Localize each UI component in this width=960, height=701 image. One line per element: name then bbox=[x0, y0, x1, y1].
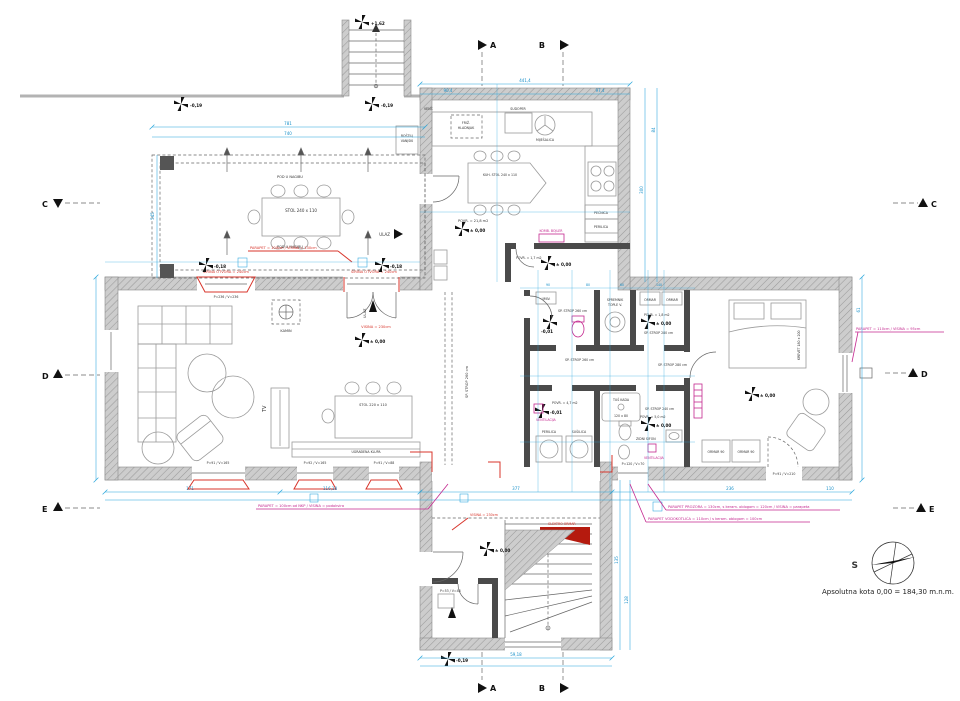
small-window-label: P=53 / V=48 bbox=[440, 589, 461, 593]
dim-label: 90,4 bbox=[444, 88, 453, 93]
vent-box bbox=[648, 444, 656, 452]
armchair bbox=[785, 411, 827, 452]
dim-label: 128 bbox=[624, 596, 629, 604]
section-arrow-icon bbox=[478, 40, 487, 50]
tank-label: SPREMNIK bbox=[607, 298, 624, 302]
exterior-stair-wall bbox=[342, 20, 349, 96]
dim-label: 135 bbox=[614, 556, 619, 564]
dishwasher-label: PERILICA bbox=[594, 225, 609, 229]
section-label-d-right: D bbox=[921, 370, 928, 379]
kitchen-door bbox=[433, 176, 459, 202]
level-label: ± 0,00 bbox=[370, 339, 385, 344]
opening-width-label: ŠIRINA OTVORA = 240cm bbox=[351, 269, 397, 274]
corridor-ceiling-label: SP. STROP 280 cm bbox=[658, 363, 687, 367]
tv-label: TV bbox=[262, 405, 268, 413]
level-label: -0,01 bbox=[550, 410, 562, 415]
compass-label: S bbox=[852, 561, 858, 571]
dim-label: 97,4 bbox=[596, 88, 605, 93]
armchair bbox=[175, 413, 226, 463]
dim-label: 171 bbox=[186, 486, 194, 491]
cooktop bbox=[588, 162, 616, 196]
north-openings: ŠIRINA OTVORA = 240cm P=236 / V=236 -0,1… bbox=[197, 258, 402, 329]
dim-label: 90 bbox=[546, 283, 550, 287]
entry-height-note: VISINA = 230cm bbox=[470, 513, 499, 517]
section-label-e-left: E bbox=[42, 505, 47, 514]
bath-block: UMIV. SP. STROP 260 cm -0,01 SPREMNIK TO… bbox=[530, 292, 682, 473]
datum-note: Apsolutna kota 0,00 = 184,30 m.n.m. bbox=[822, 588, 954, 596]
section-arrow-icon bbox=[560, 40, 569, 50]
entrance-arrow-icon bbox=[394, 229, 403, 239]
shower-label: TUŠ KADA bbox=[612, 397, 630, 402]
dim-label: 59,18 bbox=[510, 652, 522, 657]
pouf bbox=[212, 376, 254, 418]
parapet-note-right-1: PARAPET PROZORA = 130cm, s keram. oblogo… bbox=[668, 505, 810, 509]
terrace-table-label: STOL 240 x 110 bbox=[285, 208, 317, 213]
compass: S bbox=[852, 542, 915, 584]
bed bbox=[729, 300, 806, 368]
dim-label: 60 bbox=[620, 283, 624, 287]
parapet-note-left: PARAPET = 100cm od NKP / VISINA = podokv… bbox=[258, 504, 344, 508]
grill-label: VANJSKI bbox=[401, 139, 414, 143]
vent-label: VENTILACIJA bbox=[536, 418, 556, 422]
corridor-door bbox=[690, 352, 716, 378]
level-marker-icon bbox=[455, 222, 469, 236]
parapet-notes: PARAPET = 100cm od NKP / VISINA = podokv… bbox=[256, 484, 840, 522]
section-arrow-icon bbox=[908, 368, 918, 377]
level-marker-icon bbox=[355, 333, 369, 347]
section-arrow-icon bbox=[560, 683, 569, 693]
water-tank bbox=[605, 312, 625, 332]
door-height-note: VISINA = 230cm bbox=[361, 325, 391, 329]
level-marker-icon bbox=[745, 387, 759, 401]
bath-ceiling-label: SP. STROP 240 cm bbox=[645, 407, 674, 411]
window-size-label: P=91 / V=88 bbox=[374, 461, 395, 465]
bidet bbox=[619, 445, 630, 459]
small-room-door bbox=[458, 584, 478, 604]
bedroom: KREVET 180 x 200 ± 0,00 ORMAR 90 ORMAR 9… bbox=[690, 300, 944, 476]
section-label-c-right: C bbox=[931, 200, 937, 209]
level-label: +1,62 bbox=[371, 21, 385, 26]
boiler bbox=[539, 234, 564, 242]
level-label: -0,19 bbox=[381, 103, 393, 108]
vent-label: VENT. bbox=[424, 107, 433, 111]
wardrobe-label: ORMAR bbox=[644, 298, 657, 302]
window-size-label: P=92 / V=165 bbox=[304, 461, 327, 465]
entrance-label: ULAZ bbox=[363, 308, 367, 318]
pergola-column bbox=[160, 156, 174, 170]
side-table bbox=[142, 432, 174, 464]
level-label: ± 0,00 bbox=[760, 393, 775, 398]
section-arrow-icon bbox=[916, 503, 926, 512]
washer-label: PERILICA bbox=[542, 430, 557, 434]
section-arrow-icon bbox=[478, 683, 487, 693]
level-marker-icon bbox=[441, 652, 455, 666]
wc-ceiling-label: SP. STROP 260 cm bbox=[558, 309, 587, 313]
dim-label: 116,18 bbox=[323, 486, 337, 491]
window-size-label: P=91 / V=165 bbox=[207, 461, 230, 465]
under-stair bbox=[505, 530, 575, 590]
section-arrow-icon bbox=[53, 369, 63, 378]
opening-width-label: ŠIRINA OTVORA = 240cm bbox=[203, 269, 249, 274]
level-marker-icon bbox=[541, 256, 555, 270]
round-table bbox=[803, 389, 829, 415]
dim-label: 80 bbox=[586, 283, 590, 287]
terrace: ROŠTILJ VANJSKI STOL 240 x 110 POD U NAG… bbox=[152, 126, 425, 278]
kitchen: FRIŽ. HLADNJAK SUDOPER MIJEŠALICA PEĆNIC… bbox=[424, 107, 618, 280]
bench-label: UGRAĐENA KLUPA bbox=[351, 450, 381, 454]
bedroom-parapet-note: PARAPET = 110cm / VISINA = 95cm bbox=[856, 327, 921, 331]
dim-label: 236 bbox=[726, 486, 734, 491]
section-arrow-icon bbox=[53, 199, 63, 208]
hall-ceiling-label: SP. STROP 260 cm bbox=[465, 366, 469, 398]
washbasin bbox=[666, 430, 682, 442]
sofa bbox=[138, 306, 232, 442]
entrance-arrow-icon bbox=[369, 300, 377, 312]
window-size-label: P=236 / V=236 bbox=[214, 295, 239, 299]
section-label-e-right: E bbox=[929, 505, 934, 514]
dim-label: 84 bbox=[651, 127, 656, 133]
level-label: ± 0,00 bbox=[470, 228, 485, 233]
electro-label: ELEKTRO ORMAR bbox=[548, 522, 576, 526]
pergola-column bbox=[160, 264, 174, 278]
tank-label: TOPLE V. bbox=[607, 303, 622, 307]
section-label-a-top: A bbox=[490, 41, 497, 50]
dim-label: 140 bbox=[656, 283, 662, 287]
vent-label: VENTILACIJA bbox=[644, 456, 664, 460]
kitchen-table bbox=[468, 163, 546, 203]
section-label-b-bottom: B bbox=[539, 684, 545, 693]
pouf bbox=[188, 354, 226, 392]
level-label: ± 0,00 bbox=[656, 423, 671, 428]
fridge-label: FRIŽ. bbox=[462, 120, 470, 125]
section-label-d-left: D bbox=[42, 372, 49, 381]
laundry-area-label: POVR. = 4,7 m2 bbox=[552, 401, 578, 405]
level-marker-icon bbox=[365, 97, 379, 111]
level-label: -0,19 bbox=[190, 103, 202, 108]
level-label: -0,01 bbox=[541, 329, 553, 334]
section-label-a-bottom: A bbox=[490, 684, 497, 693]
bath-area-label: POVR. = 5,0 m2 bbox=[640, 415, 666, 419]
section-label-b-top: B bbox=[539, 41, 545, 50]
level-label: -0,18 bbox=[390, 264, 402, 269]
fridge-label: HLADNJAK bbox=[458, 126, 475, 130]
fireplace-label: KAMIN bbox=[280, 329, 292, 333]
level-marker-icon bbox=[480, 542, 494, 556]
toilet bbox=[572, 321, 584, 337]
wardrobe-label: ORMAR 90 bbox=[708, 450, 725, 454]
kitchen-table-label: KUH. STOL 240 x 110 bbox=[483, 173, 517, 177]
window-reveal bbox=[366, 480, 402, 489]
terrace-parapet-note: PARAPET = 100cm / VISINA = 130cm bbox=[250, 246, 317, 250]
bedroom-door bbox=[768, 437, 798, 467]
dim-label: 61 bbox=[856, 307, 861, 313]
level-marker-icon bbox=[355, 15, 369, 29]
level-marker-icon bbox=[535, 404, 549, 418]
radiator bbox=[694, 384, 702, 418]
dining-table-label: STOL 220 x 110 bbox=[359, 403, 387, 407]
entry-wing: ELEKTRO ORMAR ± 0,00 VISINA = 230cm P=53… bbox=[410, 452, 612, 666]
level-label: ± 0,00 bbox=[556, 262, 571, 267]
floor-plan-page: +1,62 -0,19 -0,19 A B A B C C D D E E bbox=[0, 0, 960, 701]
level-label: -0,18 bbox=[214, 264, 226, 269]
dim-label: 781 bbox=[284, 121, 292, 126]
section-arrow-icon bbox=[918, 198, 928, 207]
level-label: -0,19 bbox=[456, 658, 468, 663]
gard-ceiling-label: SP. STROP 280 cm bbox=[644, 331, 673, 335]
dim-label: 441,4 bbox=[519, 78, 531, 83]
dim-label: 300 bbox=[639, 186, 644, 194]
entrance-label: ULAZ bbox=[379, 232, 390, 237]
boiler-label: KOMB. BOJLER bbox=[540, 229, 564, 233]
level-label: ± 0,00 bbox=[656, 321, 671, 326]
door-size-label: P=91 / V=210 bbox=[773, 472, 796, 476]
wardrobe-label: ORMAR bbox=[666, 298, 679, 302]
sink bbox=[505, 113, 532, 133]
siphon-label: ZIDNI SIFON bbox=[636, 437, 656, 441]
dim-label: 110 bbox=[826, 486, 834, 491]
dim-label: 545 bbox=[150, 212, 155, 220]
terrace-table bbox=[262, 198, 340, 236]
slope-label: POD U NAGIBU bbox=[277, 175, 303, 179]
exterior-stair-wall bbox=[404, 20, 411, 96]
site-ground: +1,62 -0,19 -0,19 bbox=[20, 15, 420, 111]
dim-label: 377 bbox=[512, 486, 520, 491]
parapet-note-right-2: PARAPET VODOKOTLIĆA = 110cm / s keram. o… bbox=[648, 516, 763, 521]
level-label: ± 0,00 bbox=[495, 548, 510, 553]
sink-label: SUDOPER bbox=[510, 107, 526, 111]
mixer-label: MIJEŠALICA bbox=[536, 137, 555, 142]
exterior-stairs bbox=[349, 24, 404, 88]
dim-label: 740 bbox=[284, 131, 292, 136]
oven-label: PEĆNICA bbox=[594, 210, 609, 215]
floor-plan-canvas: +1,62 -0,19 -0,19 A B A B C C D D E E bbox=[0, 0, 960, 701]
bed-label: KREVET 180 x 200 bbox=[797, 330, 801, 360]
corridor-ceiling-label: SP. STROP 260 cm bbox=[565, 358, 594, 362]
kitchen-wc-area: POVR. = 1,7 m2 bbox=[516, 256, 542, 260]
window-reveal bbox=[188, 480, 249, 489]
wardrobe-label: ORMAR 90 bbox=[738, 450, 755, 454]
shower-label: 120 x 80 bbox=[614, 414, 628, 418]
dryer-label: SUŠILICA bbox=[572, 429, 587, 434]
section-label-c-left: C bbox=[42, 200, 48, 209]
level-marker-icon bbox=[543, 315, 557, 329]
bath-window-label: P=120 / V=70 bbox=[622, 462, 645, 466]
section-arrow-icon bbox=[53, 502, 63, 511]
level-marker-icon bbox=[174, 97, 188, 111]
up-arrow-icon bbox=[448, 607, 456, 618]
kitchen-counter bbox=[432, 112, 592, 146]
